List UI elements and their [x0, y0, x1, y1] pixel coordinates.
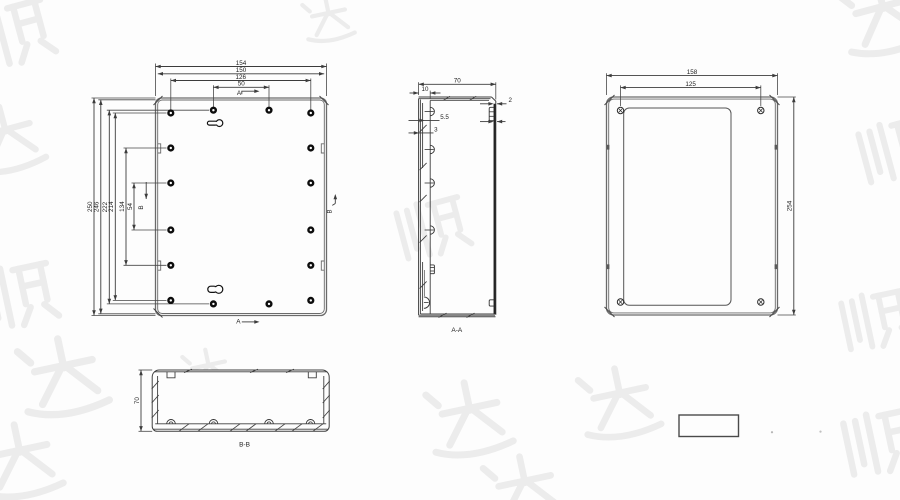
svg-text:254: 254: [787, 200, 794, 211]
svg-text:5.5: 5.5: [440, 114, 449, 121]
svg-text:70: 70: [134, 397, 141, 405]
svg-text:154: 154: [236, 60, 247, 67]
svg-text:50: 50: [238, 81, 246, 88]
svg-text:70: 70: [454, 78, 462, 85]
svg-text:A-A: A-A: [451, 327, 463, 334]
svg-text:B: B: [328, 209, 334, 213]
svg-text:10: 10: [422, 86, 429, 93]
svg-text:125: 125: [685, 81, 696, 88]
svg-text:134: 134: [119, 201, 126, 212]
svg-text:246: 246: [94, 201, 101, 212]
svg-text:214: 214: [108, 201, 115, 212]
svg-text:A: A: [237, 90, 242, 97]
svg-text:158: 158: [687, 69, 698, 76]
svg-text:B: B: [138, 205, 145, 209]
svg-text:54: 54: [127, 203, 134, 211]
svg-text:B-B: B-B: [239, 442, 250, 449]
svg-text:A: A: [236, 319, 241, 326]
svg-text:3: 3: [434, 127, 438, 134]
svg-text:2: 2: [509, 97, 513, 104]
